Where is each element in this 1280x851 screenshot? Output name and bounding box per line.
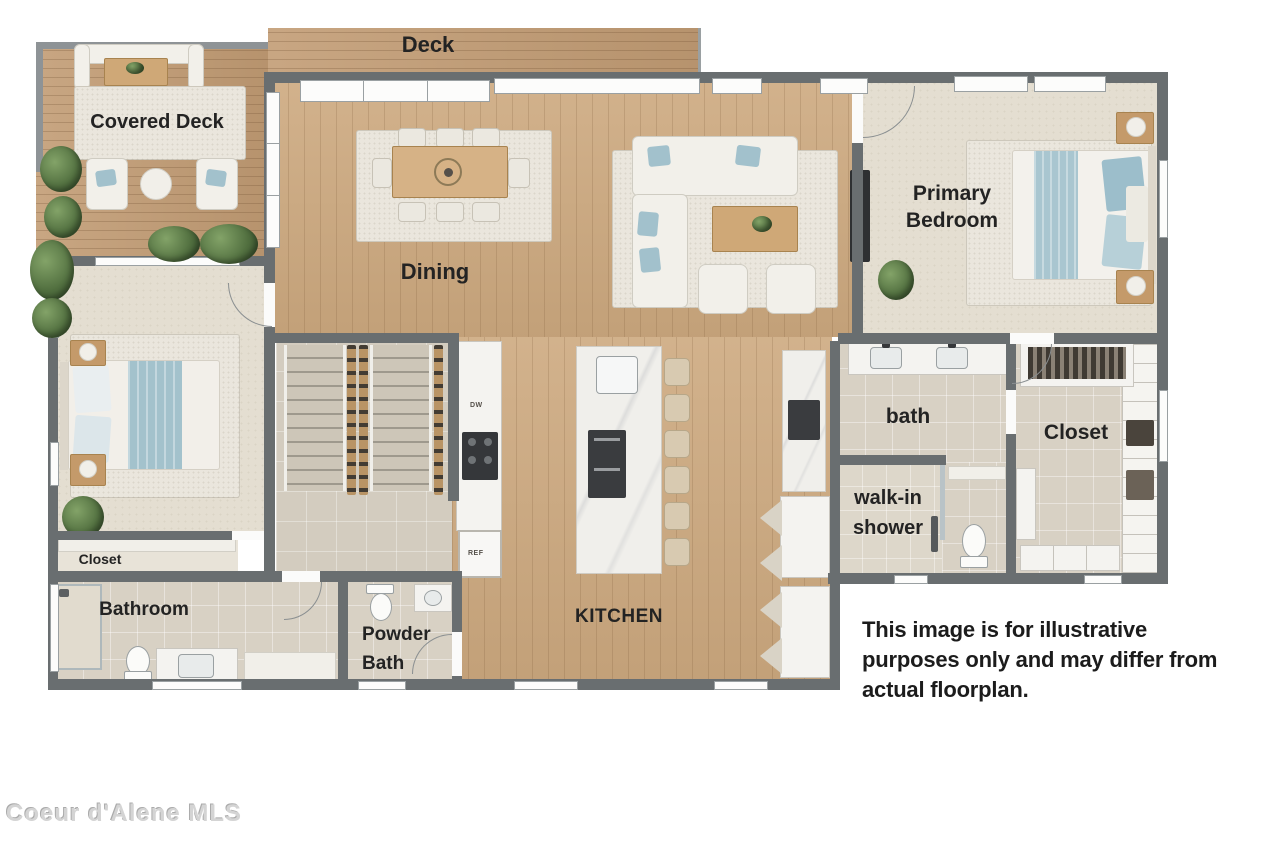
window [712, 78, 762, 94]
dishwasher-label: DW [470, 402, 483, 409]
window [358, 681, 406, 690]
pantry-shelf-icon [760, 638, 782, 674]
burner-icon [468, 438, 476, 446]
lamp-icon [1126, 276, 1146, 296]
window [1159, 160, 1168, 238]
bedroom-plant-icon [878, 260, 914, 300]
bathroom-counter-icon [244, 652, 336, 682]
pantry-shelf-icon [760, 545, 782, 581]
label-covered-deck: Covered Deck [82, 110, 232, 135]
window [1159, 390, 1168, 462]
window [820, 78, 868, 94]
closet-rod-icon [58, 538, 236, 552]
round-side-table-icon [140, 168, 172, 200]
lamp-icon [79, 343, 97, 361]
toilet-icon [370, 593, 392, 621]
pantry-cabinet-icon [780, 586, 830, 678]
coffee-table-plant-icon [752, 216, 772, 232]
bed-pillow-icon [72, 365, 111, 413]
covered-deck-railing-left [36, 42, 43, 172]
closet-drawers-icon [1020, 545, 1120, 571]
bed-blanket-icon [1034, 151, 1078, 279]
window [152, 681, 242, 690]
toilet-tank-icon [960, 556, 988, 568]
powder-sink-bowl-icon [424, 590, 442, 606]
outdoor-sofa-arm-icon [188, 44, 204, 90]
dining-chair-icon [508, 158, 530, 188]
stair-railing-icon [347, 345, 356, 495]
sofa-pillow-icon [735, 145, 761, 168]
lamp-icon [79, 460, 97, 478]
wall-bath-shower-divider [838, 455, 946, 465]
wall-dining-stairs [264, 333, 459, 343]
closet-cabinet-icon [1016, 468, 1036, 540]
window [1084, 575, 1122, 584]
shower-glass-icon [940, 465, 945, 540]
wall-east [1157, 72, 1168, 584]
shower-niche-icon [948, 466, 1006, 480]
outdoor-plant-icon [200, 224, 258, 264]
burner-icon [484, 456, 492, 464]
wall-kitchen-bath-divider [830, 341, 840, 690]
sliding-door-window [300, 80, 490, 102]
label-primary-closet: Closet [1036, 420, 1116, 446]
refrigerator-label: REF [468, 550, 484, 557]
headboard-icon [1148, 146, 1156, 284]
window [494, 78, 700, 94]
outdoor-plant-icon [30, 240, 74, 300]
armchair-pillow-icon [95, 169, 117, 188]
oven-handle-icon [594, 468, 620, 471]
outdoor-plant-icon [148, 226, 200, 262]
bathroom-sink-icon [178, 654, 214, 678]
armchair-pillow-icon [205, 169, 227, 188]
table-plant-icon [126, 62, 144, 74]
deck-floor [268, 28, 700, 78]
staircase-icon [370, 345, 432, 491]
bar-stool-icon [664, 466, 690, 494]
dining-chair-icon [372, 158, 392, 188]
window [894, 575, 928, 584]
stair-railing-icon [434, 345, 443, 495]
window [50, 442, 59, 486]
bar-stool-icon [664, 394, 690, 422]
label-powder-bath: Powder Bath [362, 620, 440, 678]
chandelier-center-icon [444, 168, 453, 177]
bar-stool-icon [664, 538, 690, 566]
burner-icon [468, 456, 476, 464]
label-walk-in-shower: walk-in shower [843, 483, 933, 543]
burner-icon [484, 438, 492, 446]
label-kitchen: KITCHEN [554, 605, 684, 629]
wall-bathroom-powder-divider [338, 571, 348, 690]
oven-handle-icon [594, 438, 620, 441]
pantry-cabinet-icon [780, 496, 830, 578]
bar-stool-icon [664, 430, 690, 458]
dining-chair-icon [472, 202, 500, 222]
island-sink-icon [596, 356, 638, 394]
door-gap [452, 632, 462, 676]
dining-chair-icon [436, 128, 464, 148]
sofa-pillow-icon [637, 211, 659, 237]
shower-fixture-icon [59, 589, 69, 597]
outdoor-sofa-arm-icon [74, 44, 90, 90]
wall-stairs-east [448, 333, 459, 501]
pantry-shelf-icon [760, 500, 782, 536]
bed-blanket-icon [128, 361, 182, 469]
window [50, 584, 59, 672]
headboard-icon [60, 362, 68, 470]
bath-sink-icon [936, 347, 968, 369]
door-gap [232, 531, 264, 540]
disclaimer-line: purposes only and may differ from [862, 645, 1242, 675]
label-bathroom: Bathroom [94, 598, 194, 622]
label-primary-bedroom: Primary Bedroom [882, 180, 1022, 234]
range-icon [462, 432, 498, 480]
dining-chair-icon [398, 202, 426, 222]
floorplan: DW REF [0, 0, 1280, 851]
dining-chair-icon [472, 128, 500, 148]
label-bath: bath [878, 404, 938, 430]
door-gap [1010, 333, 1054, 344]
armchair-icon [766, 264, 816, 314]
wall-bath-hall-north [48, 571, 462, 582]
wall-primary-bath-divider [838, 333, 1168, 344]
label-deck: Deck [388, 31, 468, 59]
pantry-shelf-icon [760, 592, 782, 628]
sofa-pillow-icon [647, 145, 671, 167]
bar-stool-icon [664, 502, 690, 530]
sofa-pillow-icon [639, 247, 661, 273]
closet-item-icon [1126, 470, 1154, 500]
window [514, 681, 578, 690]
window [1034, 76, 1106, 92]
mls-watermark: Coeur d'Alene MLS [6, 800, 242, 828]
wall-closet2-north [48, 531, 232, 540]
window [954, 76, 1028, 92]
outdoor-plant-icon [40, 146, 82, 192]
bar-stool-icon [664, 358, 690, 386]
deck-edge [698, 28, 701, 78]
bath-sink-icon [870, 347, 902, 369]
armchair-icon [698, 264, 748, 314]
door-gap [1006, 390, 1016, 434]
outdoor-plant-icon [44, 196, 82, 238]
label-dining: Dining [375, 258, 495, 286]
staircase-icon [284, 345, 346, 491]
dining-chair-icon [436, 202, 464, 222]
coffee-station-icon [788, 400, 820, 440]
disclaimer-text: This image is for illustrative purposes … [862, 615, 1242, 705]
label-bedroom-closet: Closet [70, 551, 130, 569]
outdoor-plant-icon [32, 298, 72, 338]
dining-chair-icon [398, 128, 426, 148]
window [714, 681, 768, 690]
bed-pillow-icon [1126, 186, 1148, 242]
toilet-icon [962, 524, 986, 558]
lamp-icon [1126, 117, 1146, 137]
disclaimer-line: This image is for illustrative [862, 615, 1242, 645]
closet-item-icon [1126, 420, 1154, 446]
door-gap [282, 571, 320, 582]
disclaimer-line: actual floorplan. [862, 675, 1242, 705]
window-wall [266, 92, 280, 248]
stair-railing-icon [359, 345, 368, 495]
